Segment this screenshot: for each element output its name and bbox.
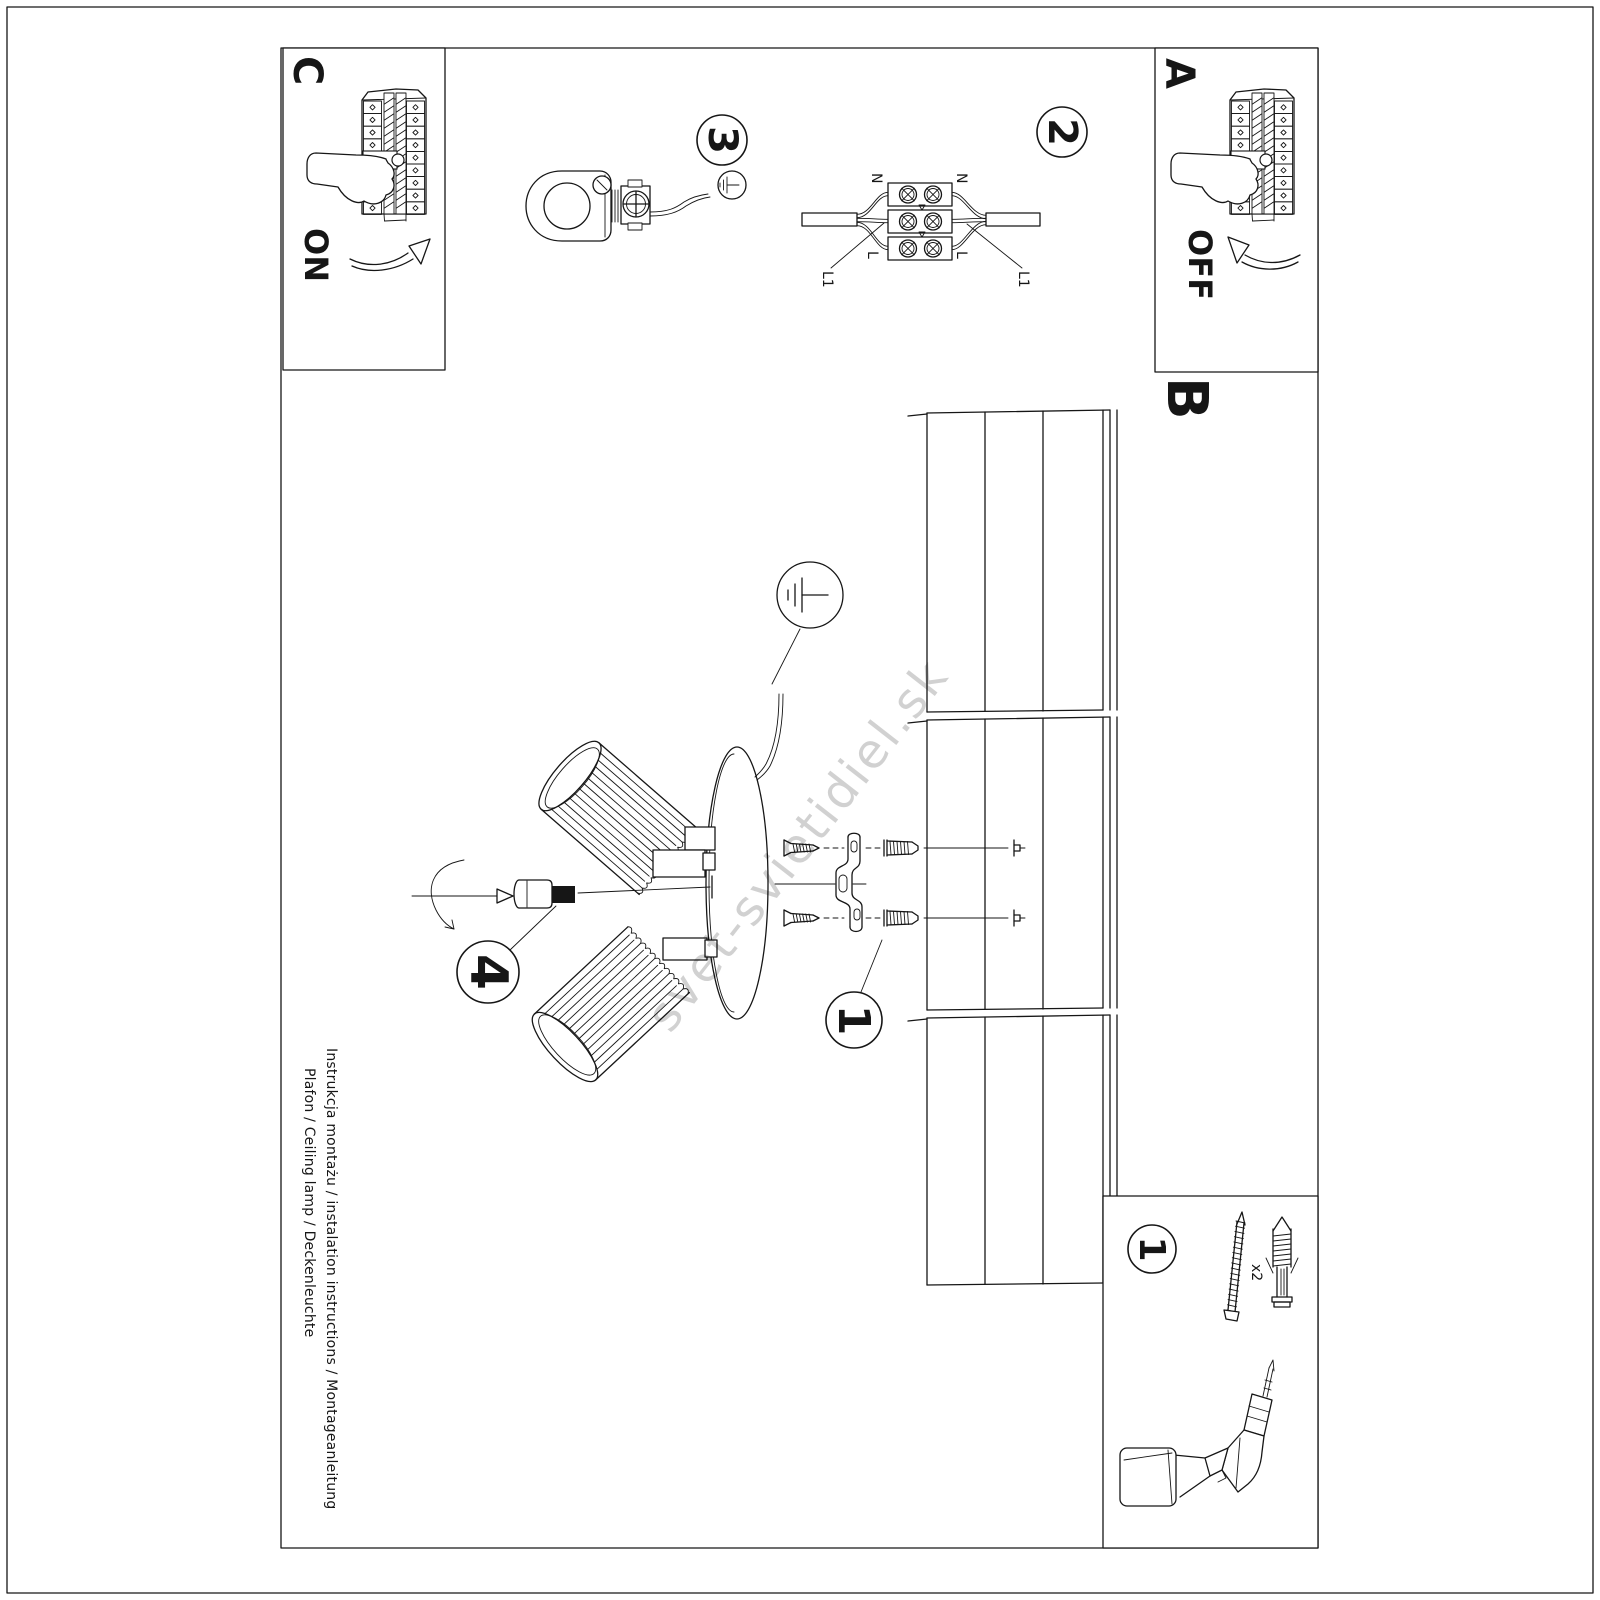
earth-ground-icon [772,562,843,684]
step-4-number: 4 [457,941,519,1003]
wire-label-l-right: L [954,251,968,259]
wire-label-n-right: N [954,173,968,183]
page-frames [7,7,1593,1593]
rotation-arrow-icon [412,860,513,929]
terminal-block-icon [802,183,1040,268]
hardware-quantity: x2 [1249,1264,1263,1281]
wire-label-l1-left: L1 [820,271,834,288]
step1-leader [861,940,882,992]
section-a-caption: OFF [1184,229,1216,300]
section-c-caption: ON [300,228,332,282]
diagram-canvas [0,0,1600,1600]
section-c-label: C [287,56,327,85]
section-a-label: A [1159,58,1199,89]
footer-title-line2: Plafon / Ceiling lamp / Deckenleuchte [302,1068,316,1337]
footer-title-line1: Instrukcja montażu / instalation instruc… [324,1048,338,1509]
tools-step-number: 1 [1128,1225,1176,1273]
mounting-bracket-icon [836,833,862,931]
wire-label-l1-right: L1 [1016,271,1030,288]
lamp-canopy [706,747,768,1019]
instruction-sheet: C ON A OFF B 2 3 4 1 1 N N L L L1 L1 x2 … [0,0,1600,1600]
mounting-hardware [775,833,1025,1048]
set-screw-icon [514,880,575,908]
earth-ground-icon-small [718,171,746,199]
ceiling-panels-icon [908,410,1117,1285]
step-1-number: 1 [826,992,882,1048]
wire-label-n-left: N [869,173,883,183]
power-cord [755,694,783,780]
wire-label-l-left: L [865,251,879,259]
cable-clamp-icon [526,171,710,241]
ceiling-lamp-exploded-icon [412,694,783,1090]
step-2-number: 2 [1037,107,1087,157]
step-3-number: 3 [697,115,747,165]
section-b-label: B [1158,377,1214,420]
screw-and-plug-rows [784,840,1025,926]
